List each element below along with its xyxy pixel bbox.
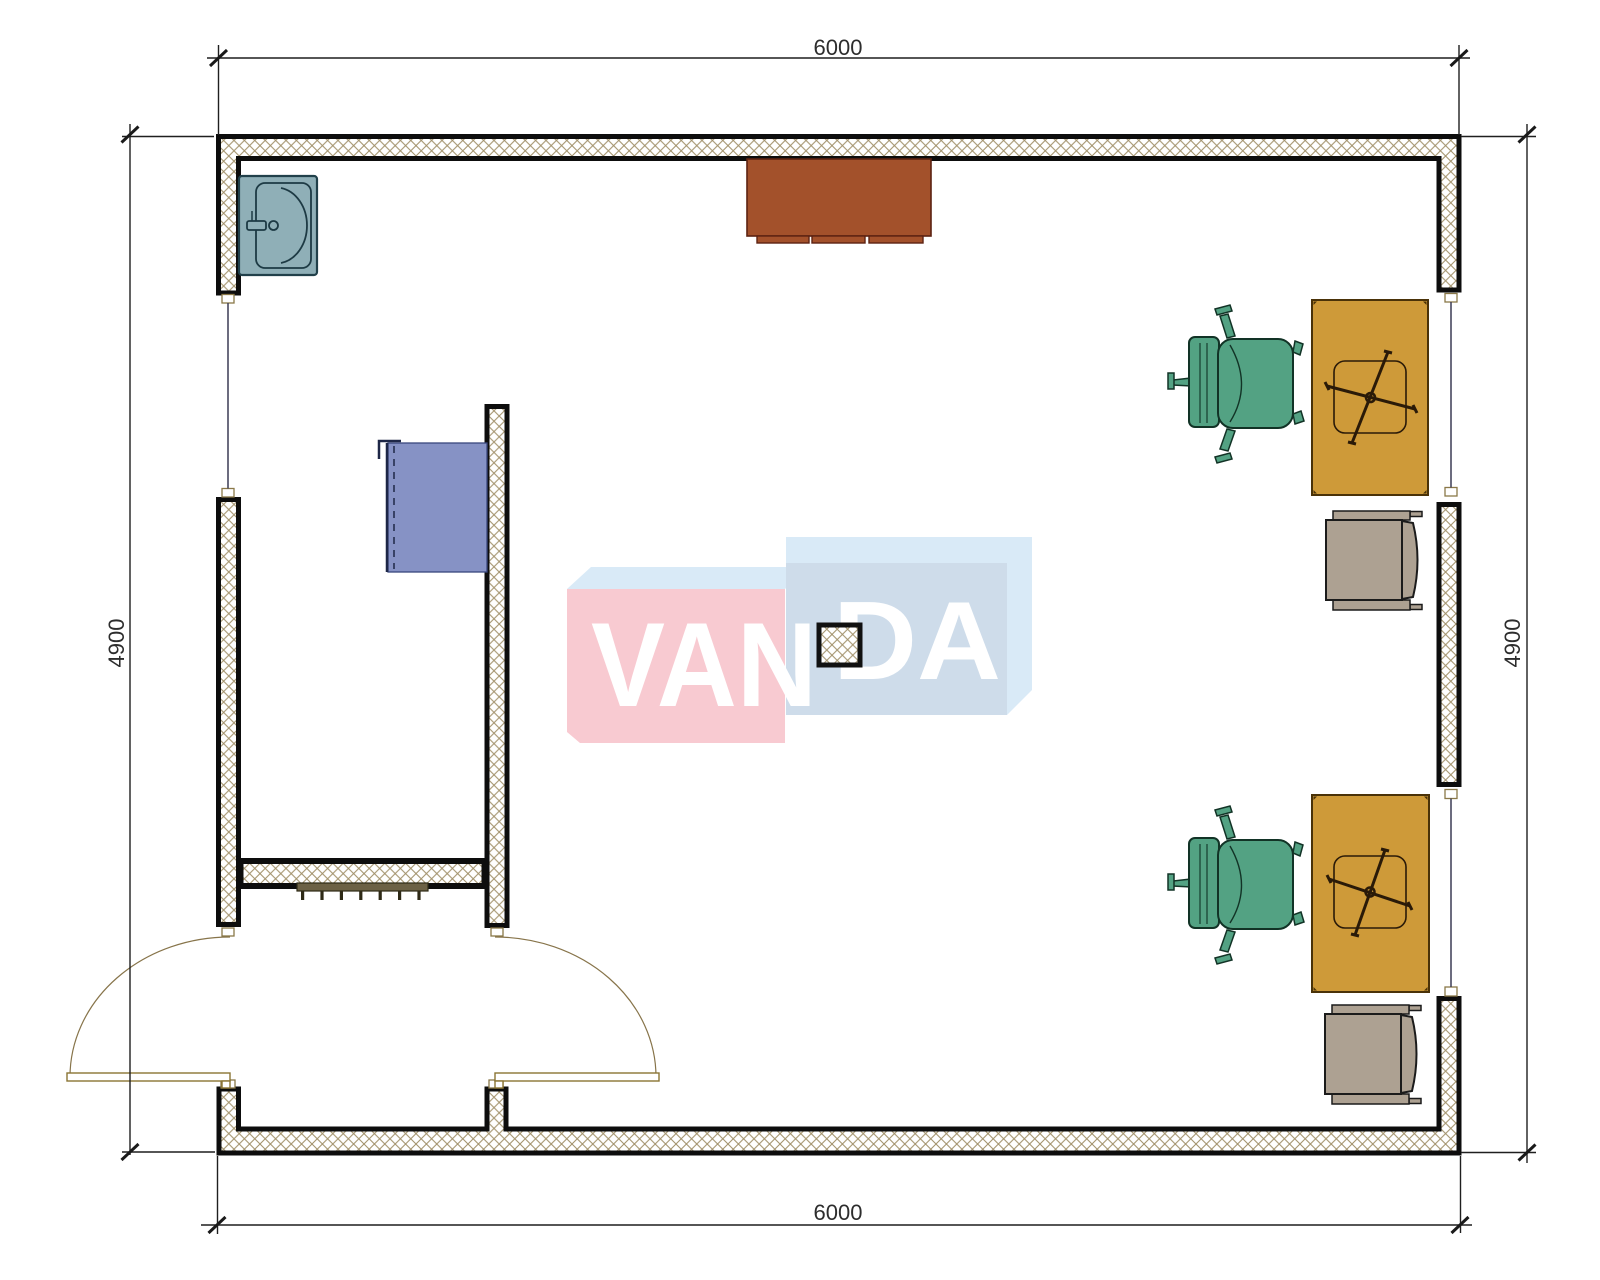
svg-text:4900: 4900	[1500, 619, 1525, 668]
svg-text:VAN: VAN	[591, 598, 817, 732]
svg-text:4900: 4900	[104, 619, 129, 668]
svg-text:6000: 6000	[814, 35, 863, 60]
svg-text:6000: 6000	[814, 1200, 863, 1225]
